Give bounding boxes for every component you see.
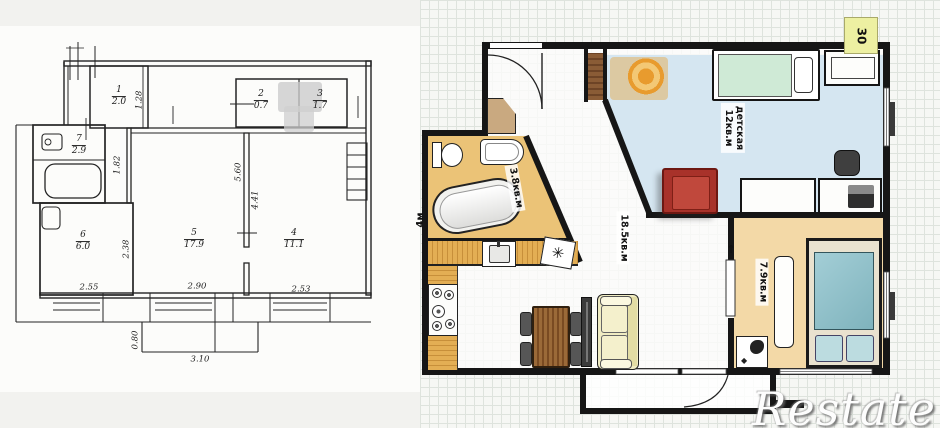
appliance-asterisk-icon: ✳: [550, 243, 566, 263]
wall-tag: 30: [844, 17, 878, 54]
left-floorplan-drawing: [0, 0, 420, 428]
room2-area: 0.7: [254, 102, 268, 112]
floorplan-comparison: 1 2.0 2 0.7 3 1.7 7 2.9 6 6.0 5 17.9 4 1…: [0, 0, 940, 428]
room6-number: 6: [76, 231, 90, 242]
bathroom-sink-icon: [480, 139, 524, 165]
desk: [740, 178, 816, 214]
dim-room4-width: 2.53: [292, 286, 311, 295]
dim-room6-height: 2.38: [123, 240, 132, 259]
rug: [610, 57, 668, 100]
bedroom-dresser: [774, 256, 794, 348]
laptop-icon: [848, 185, 874, 208]
sofa: [597, 294, 639, 370]
dim-room6-width: 2.55: [80, 284, 99, 293]
sofa-cushion: [601, 305, 628, 333]
burner-icon: [444, 290, 454, 300]
dim-center-b: 4.41: [252, 191, 261, 210]
dim-room5-width: 2.90: [188, 283, 207, 292]
burner-icon: [432, 288, 442, 298]
kitchen-sink-basin: [489, 245, 510, 263]
toilet-bowl-icon: [441, 143, 463, 167]
red-armchair: [662, 168, 718, 214]
bed-pillow: [815, 335, 843, 362]
dim-balcony-width: 3.10: [191, 356, 210, 365]
radiator-icon: [347, 143, 367, 200]
right-floorplan: ✳: [420, 0, 940, 428]
tv-panel: [581, 297, 592, 367]
room4-area: 11.1: [284, 241, 304, 251]
room2-number: 2: [254, 90, 268, 101]
kids-bed-pillow: [794, 57, 813, 93]
bedroom-area-label: 7.9кв.м: [756, 259, 769, 306]
room4-number: 4: [284, 229, 304, 240]
side-dimension-label: 4м: [400, 210, 440, 230]
children-room-label: детская 12кв.м: [721, 103, 745, 153]
dim-hall-height: 1.82: [114, 156, 123, 175]
room3-label: 3 1.7: [313, 90, 327, 112]
room4-label: 4 11.1: [284, 229, 304, 251]
sofa-armrest: [600, 296, 632, 306]
burner-icon: [432, 305, 445, 318]
stove-icon: [42, 207, 60, 229]
room7-area: 2.9: [72, 147, 86, 157]
burner-icon: [445, 319, 455, 329]
dim-balcony-depth: 0.80: [132, 331, 141, 350]
room2-label: 2 0.7: [254, 90, 268, 112]
bed-blanket: [814, 252, 874, 330]
doorway-threshold-rug: [588, 53, 603, 100]
bedroom-door-leaf: [726, 260, 735, 316]
room5-area: 17.9: [184, 241, 204, 251]
bathtub-icon: [45, 164, 101, 198]
door-direction-arrow: ↑: [723, 243, 739, 256]
office-chair: [834, 150, 860, 176]
room5-number: 5: [184, 229, 204, 240]
stove-icon: [428, 284, 458, 336]
kitchen-tap-icon: [497, 241, 500, 247]
dining-chair: [520, 312, 532, 336]
tv-screen-line: [586, 302, 588, 362]
plant-stand: ◆: [736, 336, 768, 368]
left-floorplan: 1 2.0 2 0.7 3 1.7 7 2.9 6 6.0 5 17.9 4 1…: [0, 0, 420, 428]
room1-number: 1: [112, 86, 126, 97]
living-area-label: 18.5кв.м: [617, 211, 630, 264]
dining-table: [532, 306, 570, 368]
wardrobe-door: [831, 57, 875, 79]
bed-pillow: [846, 335, 874, 362]
plant-icon: [750, 340, 764, 354]
room3-area: 1.7: [313, 102, 327, 112]
children-room-name: детская: [733, 106, 744, 150]
kids-bed-blanket: [718, 54, 792, 97]
burner-icon: [432, 321, 442, 331]
dim-room1-height: 1.28: [136, 91, 145, 110]
sink-basin: [485, 143, 519, 161]
armchair-seat: [672, 176, 710, 210]
dining-chair: [520, 342, 532, 366]
decor-diamond-icon: ◆: [741, 356, 747, 365]
room7-label: 7 2.9: [72, 135, 86, 157]
room3-number: 3: [313, 90, 327, 101]
room6-area: 6.0: [76, 243, 90, 253]
wardrobe: [824, 50, 880, 86]
restate-watermark: Restate: [752, 382, 936, 428]
kitchen-appliance-unit: ✳: [540, 236, 576, 269]
room7-number: 7: [72, 135, 86, 146]
dim-center-a: 5.60: [235, 163, 244, 182]
sofa-armrest: [600, 359, 632, 369]
computer-desk: [818, 178, 882, 214]
double-bed: [806, 238, 882, 368]
room5-label: 5 17.9: [184, 229, 204, 251]
kids-bed: [712, 49, 820, 101]
wall-tag-text: 30: [854, 27, 868, 44]
children-room-area: 12кв.м: [722, 106, 733, 150]
balcony-floor: [586, 375, 770, 408]
kitchen-sink-unit: [482, 241, 516, 267]
room1-area: 2.0: [112, 98, 126, 108]
arrow-up-icon: ↑: [726, 243, 735, 256]
room1-label: 1 2.0: [112, 86, 126, 108]
sofa-backrest: [627, 297, 637, 366]
room6-label: 6 6.0: [76, 231, 90, 253]
